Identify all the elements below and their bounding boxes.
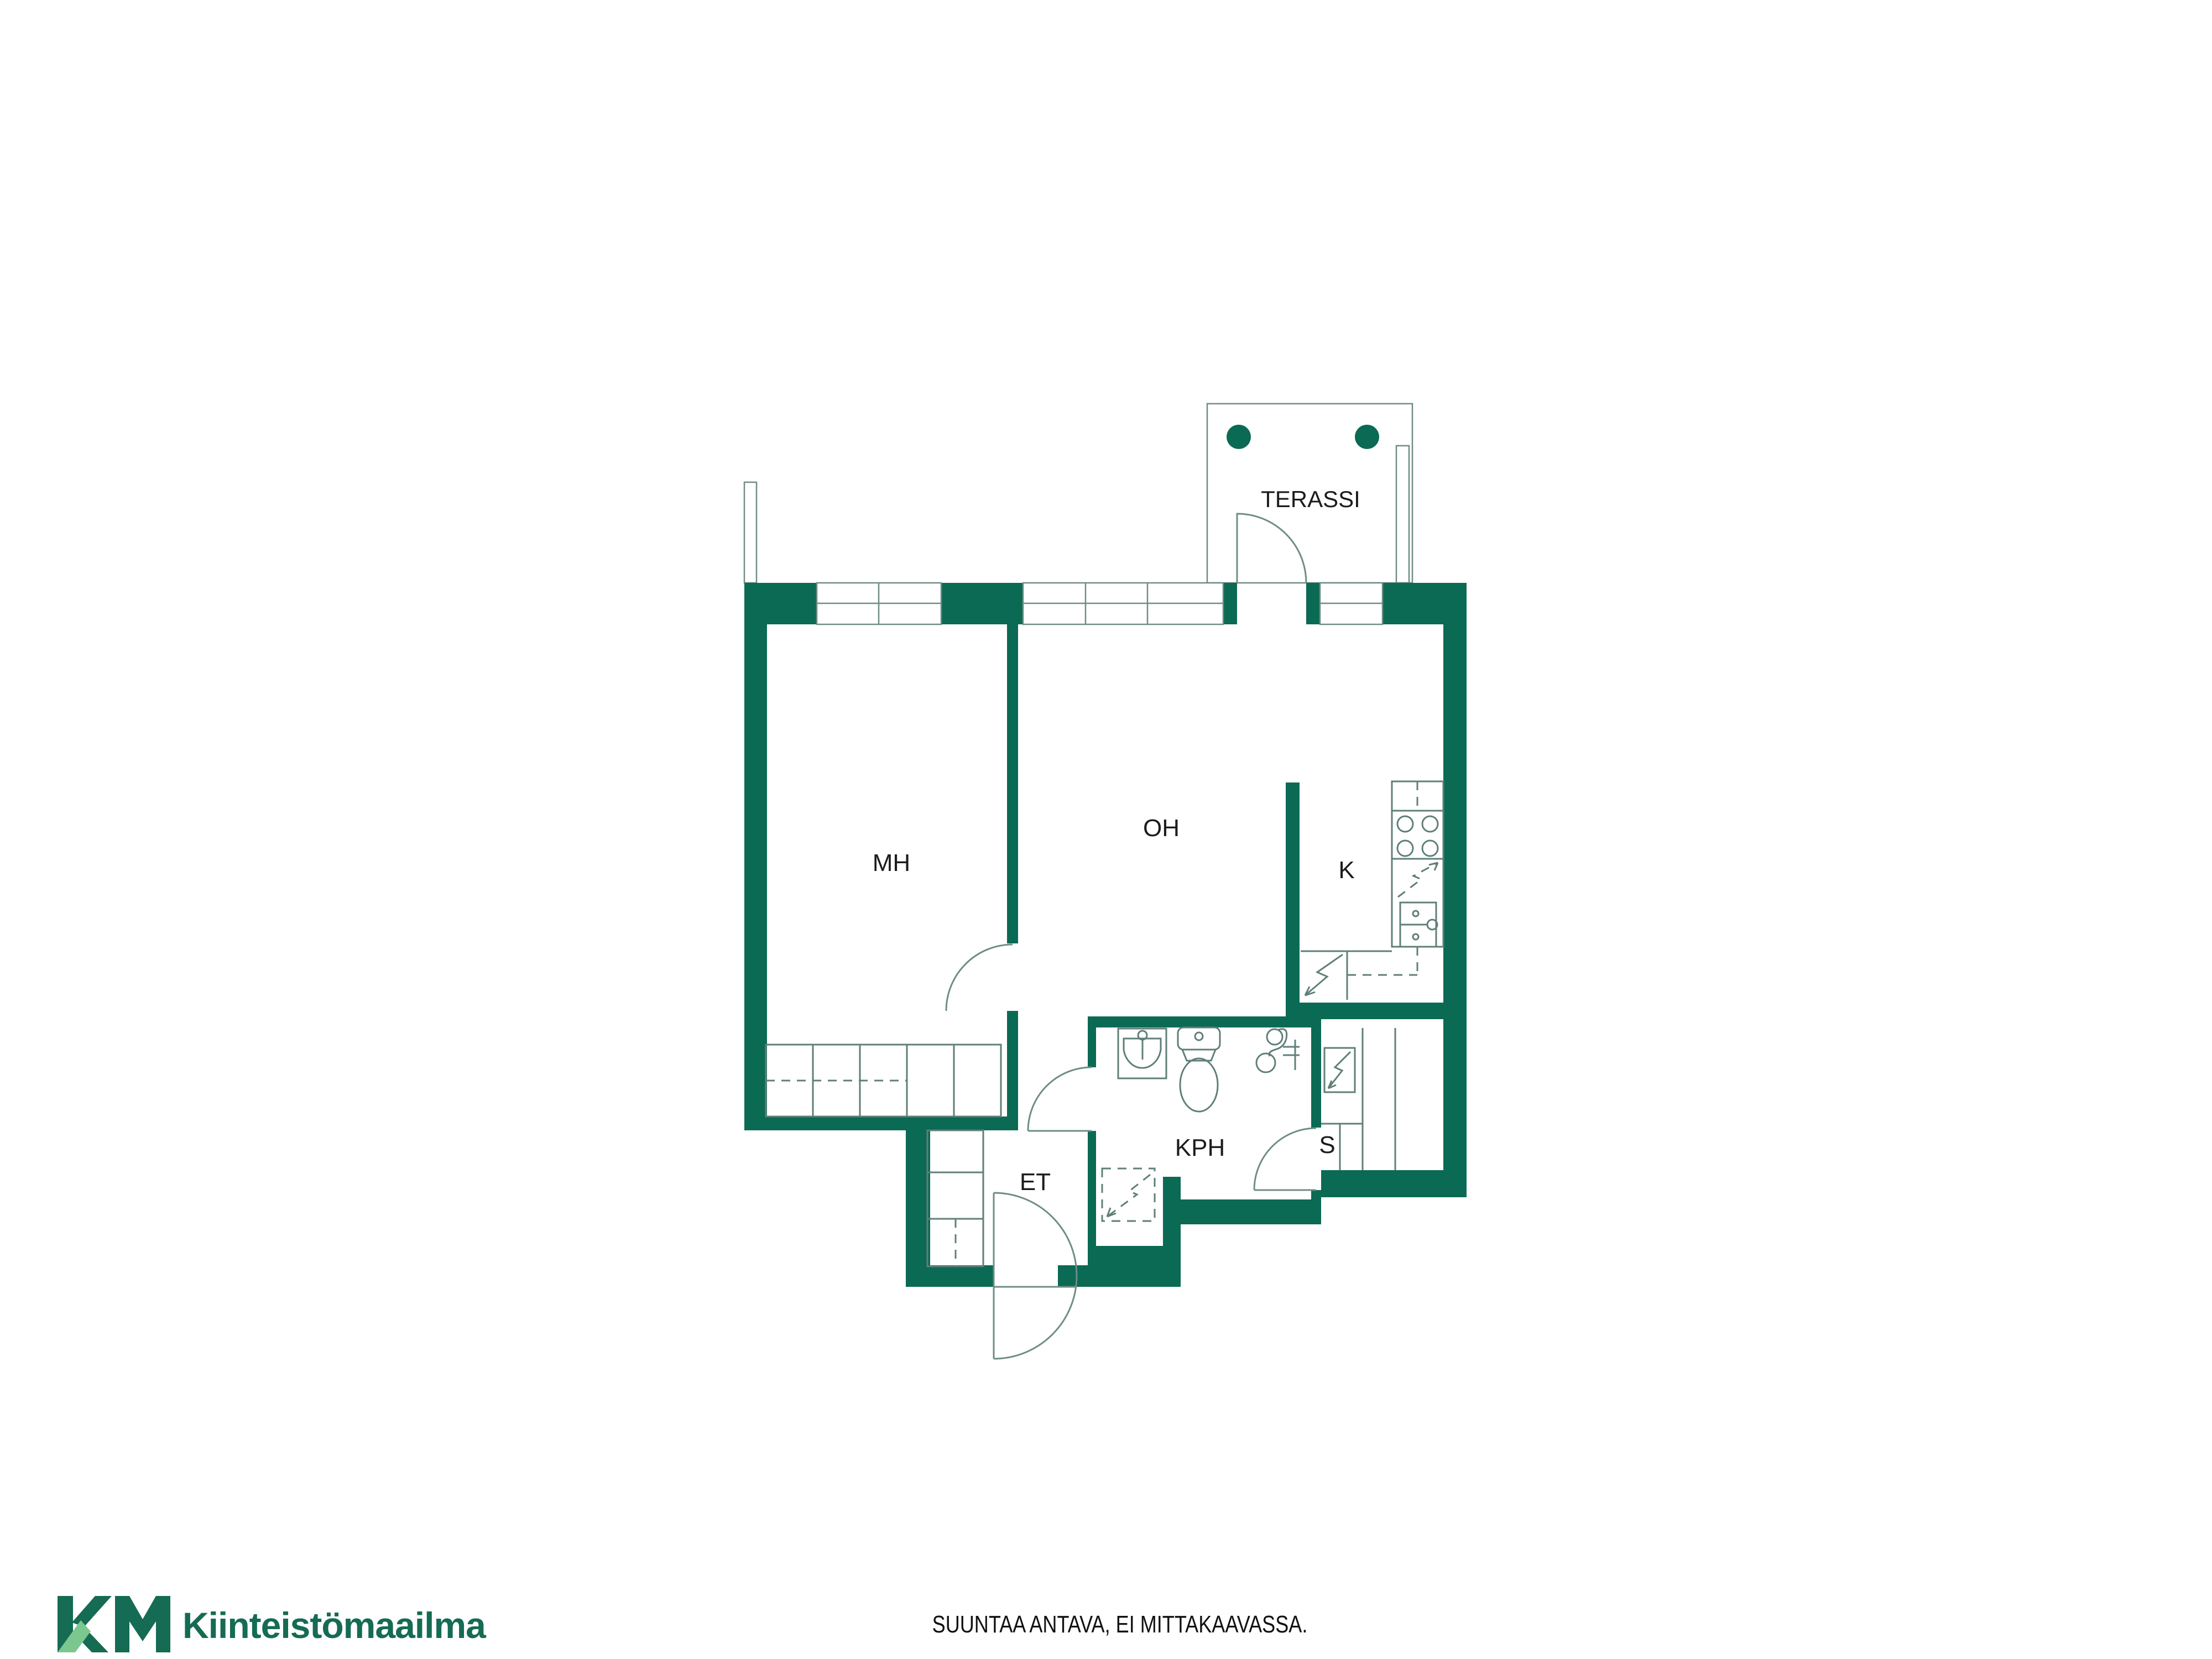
terrace-railing: [1396, 446, 1409, 583]
wall-segment-kph-top: [1088, 1016, 1311, 1027]
room-label-oh: OH: [1143, 815, 1180, 842]
doors: [946, 945, 1316, 1359]
electrical-bolt-icon: [1305, 954, 1343, 995]
appliance-bolt-dashed-icon: [1398, 863, 1438, 897]
room-label-k: K: [1338, 857, 1354, 884]
room-label-terassi: TERASSI: [1261, 486, 1360, 512]
room-label-mh: MH: [873, 849, 910, 877]
brand-logo: Kiinteistömaailma: [58, 1596, 487, 1652]
wall-segment-oh-k: [1286, 782, 1300, 1019]
mh-wardrobe: [766, 1045, 1001, 1117]
wall-segment: [1383, 583, 1467, 624]
wall-segment-niche-bottom: [1088, 1246, 1181, 1287]
washing-machine-icon: [1102, 1168, 1155, 1221]
wall-segment-kph-bottom: [1181, 1199, 1321, 1224]
wall-segment: [744, 583, 817, 624]
window-mh: [817, 583, 941, 624]
walls: [744, 583, 1467, 1287]
wall-segment-k-bottom: [1300, 1003, 1467, 1019]
kitchen-sink-icon: [1400, 902, 1437, 947]
wall-segment-kph-s: [1311, 1190, 1321, 1224]
wall-segment-mh-oh: [1007, 1011, 1018, 1117]
kitchen-counter: [1301, 781, 1443, 1000]
wall-segment-niche-right: [1163, 1177, 1181, 1246]
terrace-post-icon: [1227, 425, 1251, 449]
wall-segment: [1223, 583, 1237, 624]
wall-segment: [1306, 583, 1320, 624]
wall-segment-left: [744, 624, 767, 1130]
wall-segment-mh-bottom: [744, 1117, 1018, 1130]
wall-segment-mh-oh: [1007, 624, 1018, 943]
shower-icon: [1256, 1029, 1300, 1072]
sauna-stove-icon: [1324, 1048, 1355, 1092]
wall-stub: [744, 482, 757, 583]
floor-plan-page: TERASSI MH OH K KPH S ET SUUNTAA ANTAVA,…: [0, 0, 2212, 1659]
terrace-post-icon: [1355, 425, 1379, 449]
bathroom-sink-icon: [1118, 1029, 1166, 1078]
wall-segment: [941, 583, 1023, 624]
terrace-door-arc: [1237, 514, 1306, 583]
kph-door-arc: [1028, 1067, 1092, 1131]
windows: [817, 583, 1383, 624]
stove-burners-icon: [1397, 816, 1438, 856]
wall-segment-kph-s: [1311, 1016, 1321, 1128]
wall-segment-kph-left: [1088, 1027, 1096, 1067]
wall-segment-step: [906, 1130, 930, 1287]
wall-segment-right: [1443, 624, 1467, 1197]
room-label-s: S: [1319, 1131, 1335, 1159]
room-label-et: ET: [1020, 1168, 1051, 1196]
floor-plan: TERASSI MH OH K KPH S ET SUUNTAA ANTAVA,…: [0, 0, 2212, 1659]
wall-segment-et-bottom: [906, 1265, 994, 1287]
window-k: [1320, 583, 1383, 624]
et-closet: [927, 1130, 983, 1266]
mh-door-arc: [946, 945, 1013, 1011]
disclaimer-text: SUUNTAA ANTAVA, EI MITTAKAAVASSA.: [932, 1611, 1308, 1638]
sauna-door-arc: [1254, 1128, 1316, 1190]
km-monogram-icon: [58, 1596, 170, 1652]
toilet-icon: [1178, 1027, 1220, 1112]
window-oh: [1023, 583, 1223, 624]
room-label-kph: KPH: [1175, 1134, 1225, 1161]
wall-segment-kph-left: [1088, 1131, 1096, 1246]
brand-logo-text: Kiinteistömaailma: [182, 1605, 487, 1646]
